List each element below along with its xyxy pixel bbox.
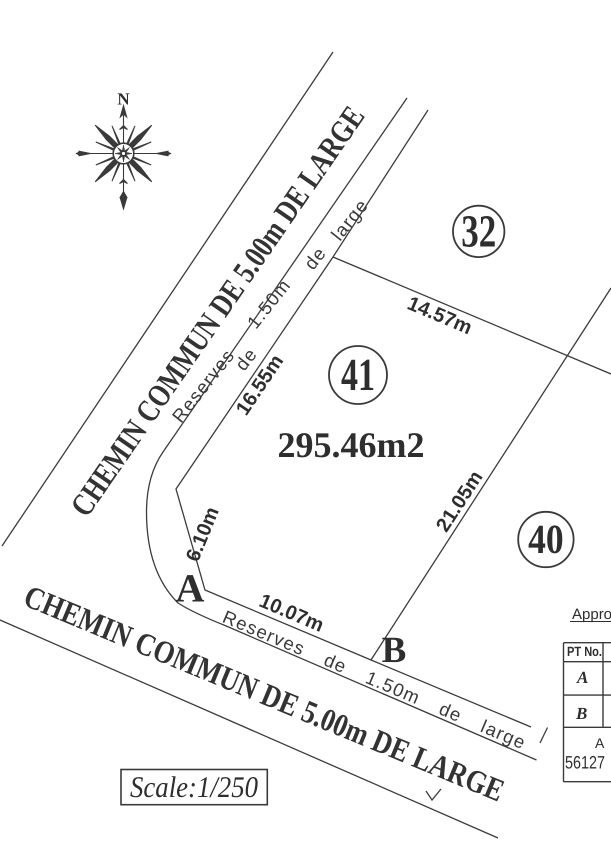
svg-text:41: 41 xyxy=(341,349,375,400)
svg-text:A: A xyxy=(176,566,205,611)
svg-text:B: B xyxy=(382,630,407,671)
svg-text:A: A xyxy=(595,735,605,751)
svg-text:40: 40 xyxy=(528,516,564,562)
svg-text:Scale:1/250: Scale:1/250 xyxy=(130,771,258,804)
svg-text:Approxi: Approxi xyxy=(572,606,611,623)
svg-text:295.46m2: 295.46m2 xyxy=(278,425,425,465)
svg-text:B: B xyxy=(575,704,587,723)
svg-text:32: 32 xyxy=(461,206,496,257)
svg-text:N: N xyxy=(117,90,130,109)
svg-text:PT No.: PT No. xyxy=(567,644,602,659)
svg-text:A: A xyxy=(576,668,588,687)
svg-text:56127: 56127 xyxy=(565,753,605,773)
